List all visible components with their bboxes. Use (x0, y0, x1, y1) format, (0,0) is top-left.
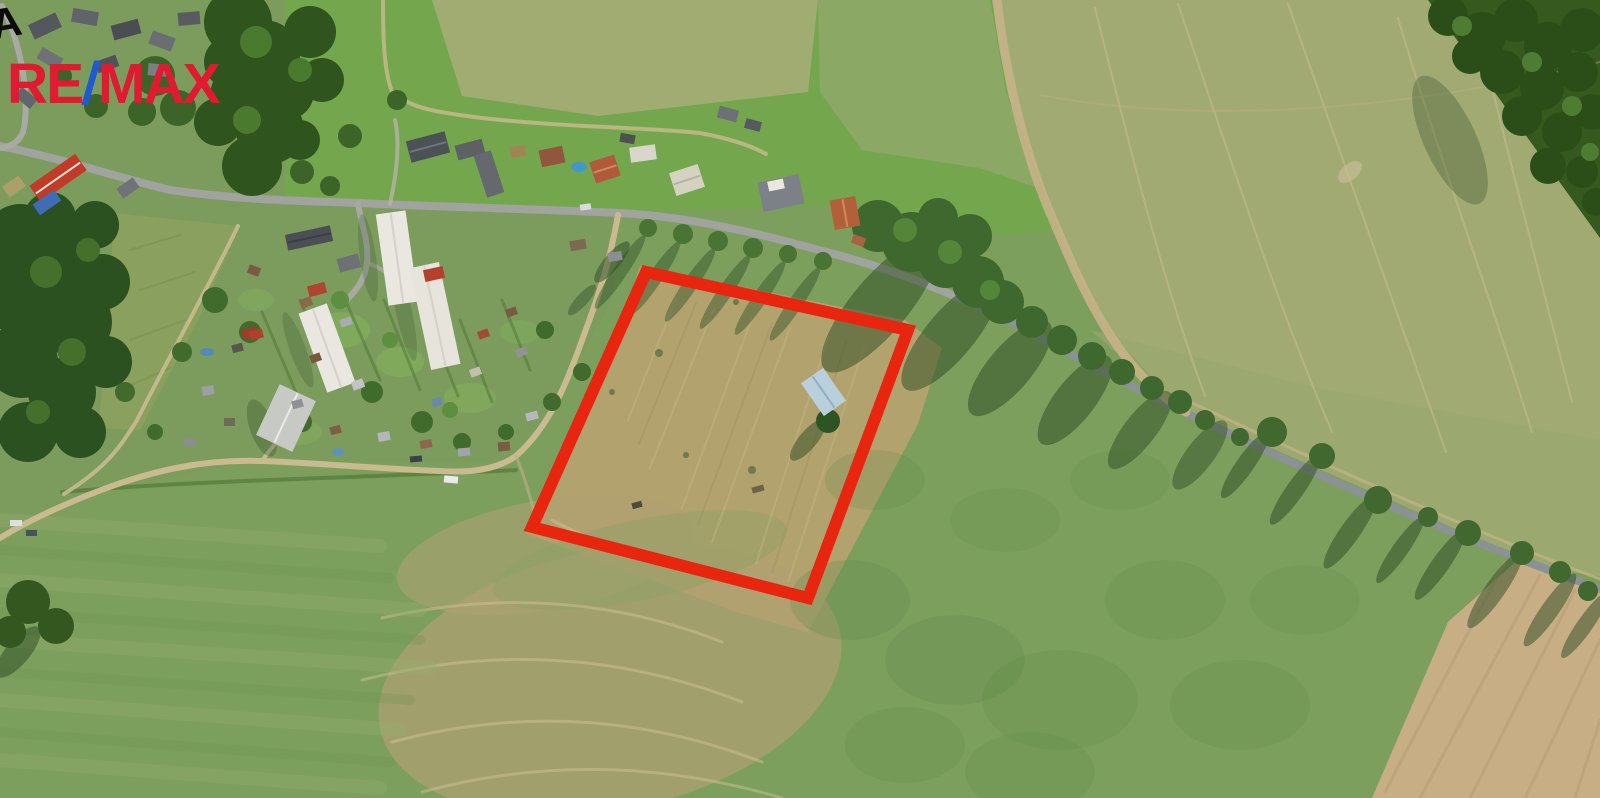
car (26, 530, 37, 536)
tree (814, 252, 832, 270)
tree (38, 608, 74, 644)
tarp (332, 448, 344, 456)
lawn (238, 289, 274, 311)
tree (1309, 443, 1335, 469)
tree (1549, 561, 1571, 583)
tree (893, 218, 917, 242)
tree (147, 424, 163, 440)
ground-patch (950, 488, 1060, 552)
tree (1502, 96, 1542, 136)
car (444, 475, 459, 483)
tree (14, 296, 46, 328)
tree (222, 136, 282, 196)
tree (320, 176, 340, 196)
tree (115, 382, 135, 402)
lawn (500, 320, 540, 344)
tree (76, 238, 100, 262)
tree (733, 299, 739, 305)
tree (442, 402, 458, 418)
tree (290, 160, 314, 184)
remax-logo: RE/MAX (7, 56, 219, 113)
tree (980, 280, 1000, 300)
tree (172, 342, 192, 362)
tree (1109, 359, 1135, 385)
tree (1558, 52, 1598, 92)
ground-patch (1170, 660, 1310, 750)
ground-patch (845, 707, 965, 783)
tree (58, 338, 86, 366)
tree (411, 411, 433, 433)
aerial-imagery (0, 0, 1600, 798)
tree (938, 240, 962, 264)
garden-shed (224, 418, 235, 426)
tree (1168, 390, 1192, 414)
tree (1231, 428, 1249, 446)
tree (1530, 148, 1566, 184)
tree (1257, 417, 1287, 447)
tree (1581, 143, 1599, 161)
tree (609, 389, 615, 395)
tree (74, 254, 130, 310)
tree (779, 245, 797, 263)
tree (543, 393, 561, 411)
tree (1452, 38, 1488, 74)
tree (1140, 376, 1164, 400)
tree (536, 321, 554, 339)
car (10, 520, 22, 526)
tree (288, 58, 312, 82)
tree (1364, 486, 1392, 514)
tree (1562, 96, 1582, 116)
listing-aerial-photo: A RE/MAX (0, 0, 1600, 798)
tree (1016, 306, 1048, 338)
tree (240, 26, 272, 58)
tree (202, 287, 228, 313)
tree (1510, 541, 1534, 565)
tree (1452, 16, 1472, 36)
tarp (200, 348, 214, 356)
tree (80, 336, 132, 388)
logo-max: MAX (98, 52, 219, 116)
tree (1566, 156, 1598, 188)
tree (338, 124, 362, 148)
tree (280, 120, 320, 160)
tree (30, 256, 62, 288)
tree (54, 406, 106, 458)
tree (498, 424, 514, 440)
tree (1522, 52, 1542, 72)
tree (1418, 507, 1438, 527)
tree (284, 6, 336, 58)
tree (655, 349, 663, 357)
tree (683, 452, 689, 458)
tree (1455, 520, 1481, 546)
tree (1195, 410, 1215, 430)
tree (26, 400, 50, 424)
tree (708, 231, 728, 251)
pool (571, 162, 587, 172)
tree (573, 363, 591, 381)
tree (1047, 325, 1077, 355)
tree (743, 238, 763, 258)
house (177, 11, 200, 26)
tree (382, 332, 398, 348)
tree (639, 219, 657, 237)
garden-shed (458, 447, 471, 456)
logo-re: RE (7, 52, 82, 116)
tree (1578, 581, 1598, 601)
tree (673, 224, 693, 244)
tree (1078, 342, 1106, 370)
car (410, 455, 422, 462)
tree (331, 291, 349, 309)
ground-patch (1105, 560, 1225, 640)
tree (233, 106, 261, 134)
tree (748, 466, 756, 474)
tree (387, 90, 407, 110)
garden-shed (498, 441, 511, 451)
ground-patch (1250, 565, 1360, 635)
